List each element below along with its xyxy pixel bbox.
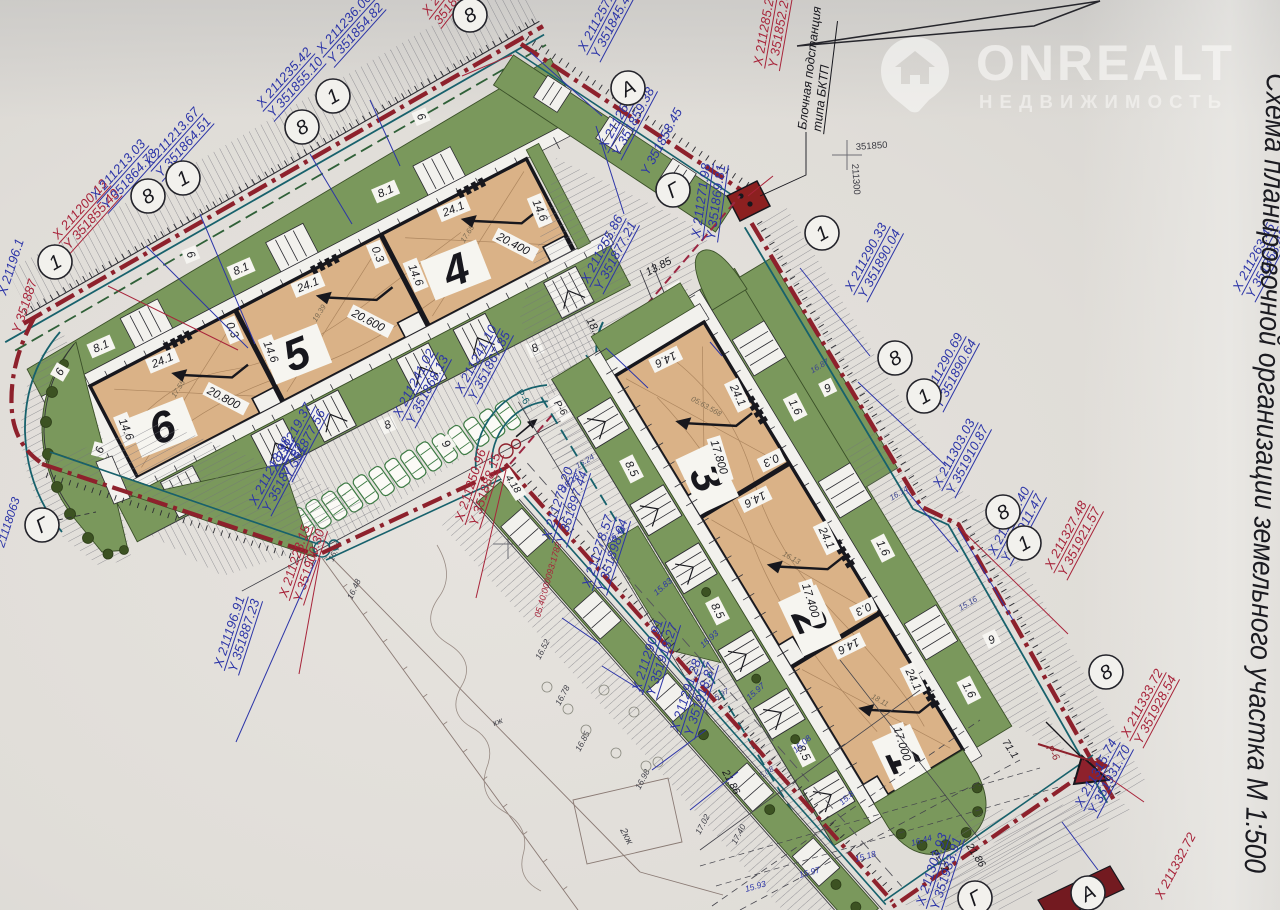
svg-text:351850: 351850 (855, 140, 887, 153)
svg-text:211300: 211300 (849, 163, 862, 195)
svg-text:НЕДВИЖИМОСТЬ: НЕДВИЖИМОСТЬ (979, 91, 1228, 112)
svg-text:ONREALT: ONREALT (976, 35, 1235, 91)
